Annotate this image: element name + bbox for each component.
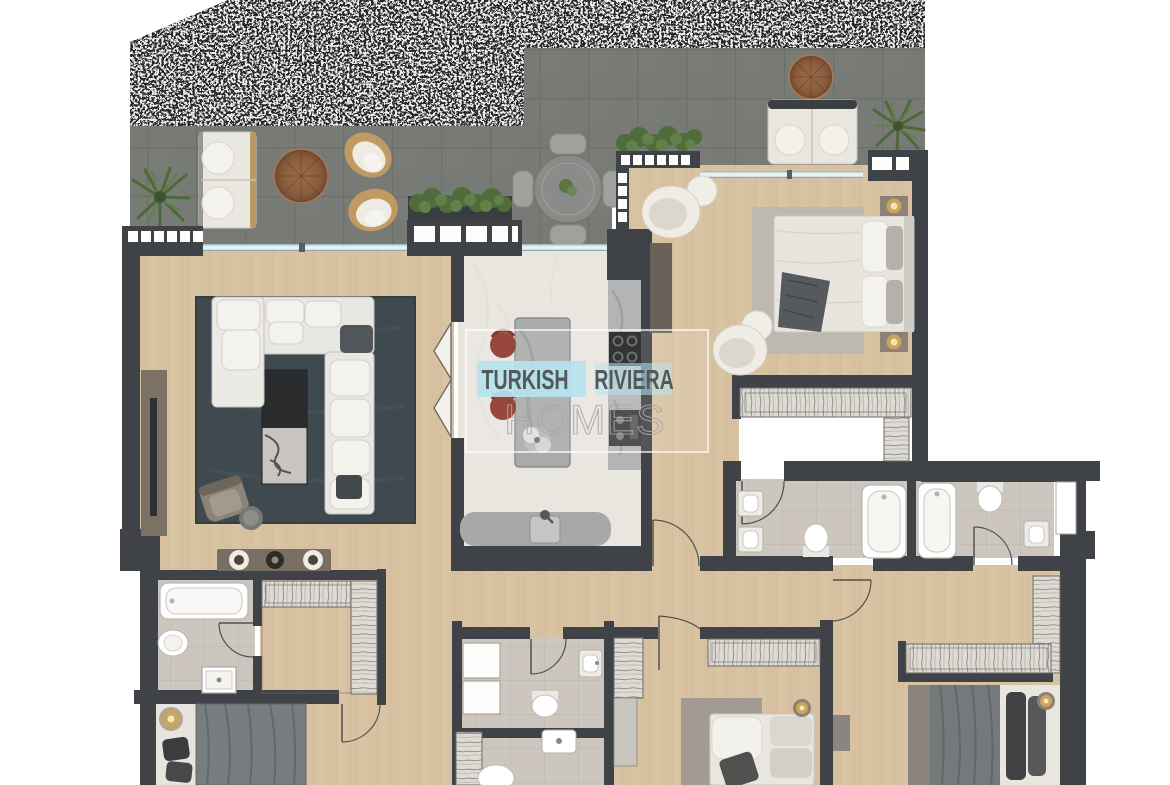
svg-text:HOMES: HOMES [504, 396, 666, 443]
svg-text:TURKISH: TURKISH [481, 365, 568, 396]
svg-text:RIVIERA: RIVIERA [594, 365, 673, 396]
